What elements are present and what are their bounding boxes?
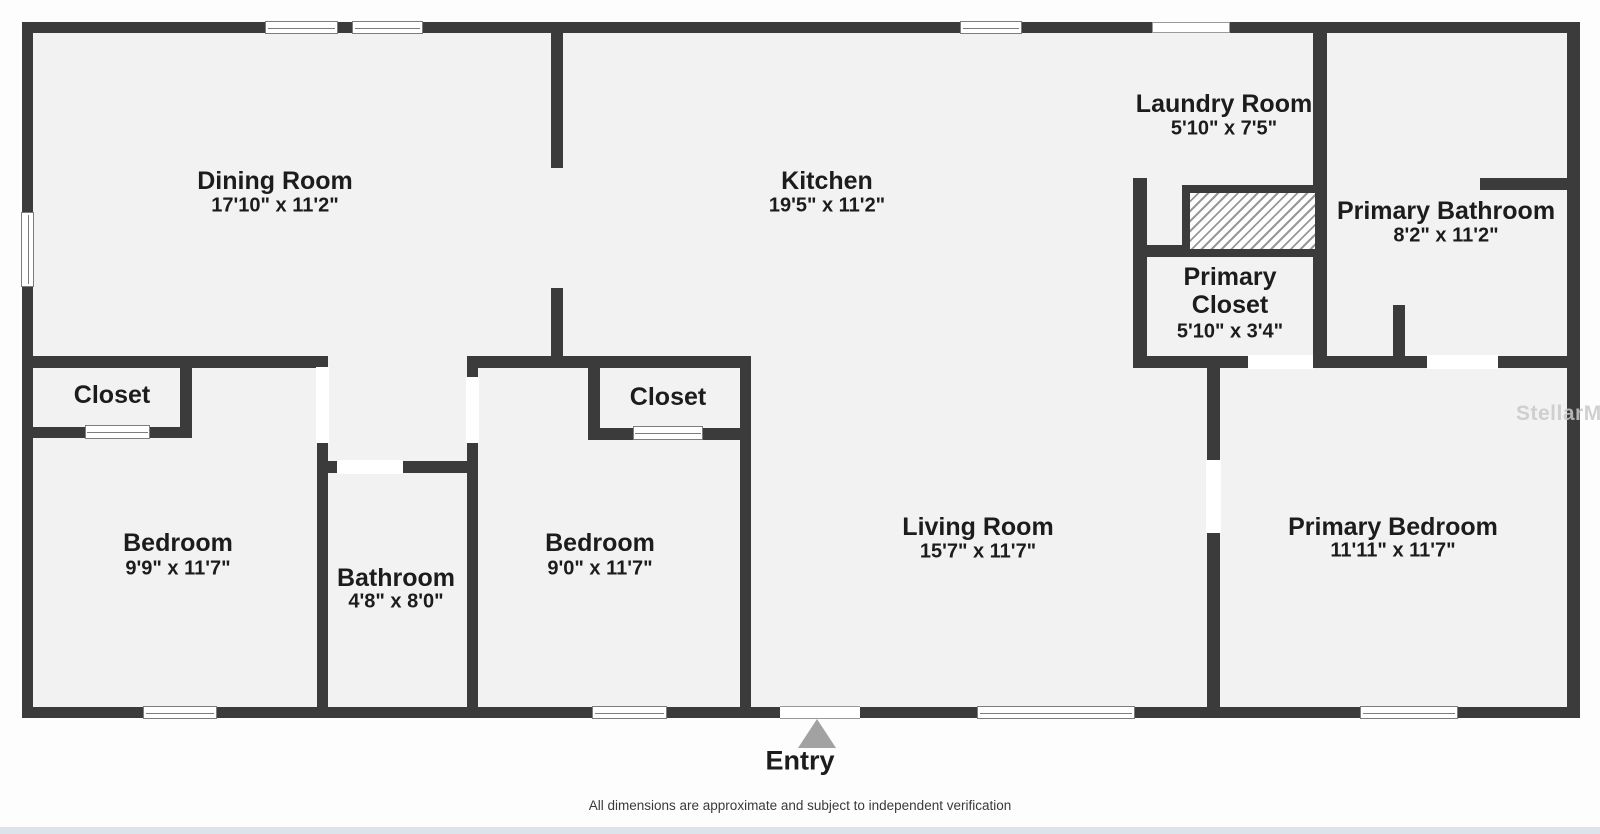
door-opening bbox=[1427, 355, 1498, 369]
entry-label: Entry bbox=[765, 746, 834, 777]
floor-area bbox=[33, 33, 1567, 707]
wall bbox=[1207, 356, 1220, 460]
footer-strip bbox=[0, 827, 1600, 834]
door-opening bbox=[337, 460, 403, 474]
wall bbox=[588, 428, 633, 440]
window bbox=[1360, 706, 1458, 719]
room-label-living: Living Room bbox=[902, 513, 1053, 541]
wall bbox=[740, 356, 751, 707]
stellar-mls-watermark: StellarMLS bbox=[1516, 402, 1600, 426]
room-dims-bedroom-2: 9'0" x 11'7" bbox=[547, 558, 652, 581]
closet-sliding-door bbox=[633, 426, 703, 440]
door-opening bbox=[1206, 460, 1221, 533]
room-label-primary-bathroom: Primary Bathroom bbox=[1337, 197, 1555, 225]
appliance-hatch bbox=[1182, 185, 1323, 257]
window bbox=[352, 21, 423, 34]
floorplan-canvas: Dining Room 17'10" x 11'2" Kitchen 19'5"… bbox=[0, 0, 1600, 834]
room-label-primary-bedroom: Primary Bedroom bbox=[1288, 513, 1498, 541]
door-opening bbox=[316, 367, 329, 443]
room-dims-living: 15'7" x 11'7" bbox=[920, 541, 1036, 564]
room-dims-primary-bedroom: 11'11" x 11'7" bbox=[1330, 540, 1455, 563]
wall bbox=[551, 288, 563, 368]
room-dims-bathroom: 4'8" x 8'0" bbox=[348, 591, 443, 614]
room-label-primary-closet: Primary Closet bbox=[1155, 263, 1305, 319]
window bbox=[960, 21, 1022, 34]
wall bbox=[22, 22, 1580, 33]
room-dims-dining: 17'10" x 11'2" bbox=[211, 195, 338, 218]
window bbox=[592, 706, 667, 719]
room-dims-primary-closet: 5'10" x 3'4" bbox=[1177, 321, 1283, 344]
wall bbox=[467, 356, 751, 368]
wall bbox=[317, 443, 328, 707]
wall-opening bbox=[1152, 22, 1230, 33]
window bbox=[143, 706, 217, 719]
wall bbox=[588, 368, 600, 428]
room-label-closet-2: Closet bbox=[630, 383, 706, 411]
room-dims-kitchen: 19'5" x 11'2" bbox=[769, 195, 885, 218]
wall bbox=[180, 356, 192, 438]
room-label-kitchen: Kitchen bbox=[781, 167, 873, 195]
wall bbox=[1480, 178, 1567, 190]
wall bbox=[1567, 22, 1580, 718]
window bbox=[21, 212, 34, 287]
wall bbox=[22, 22, 33, 718]
room-dims-laundry: 5'10" x 7'5" bbox=[1171, 118, 1277, 141]
window bbox=[265, 21, 338, 34]
door-opening bbox=[466, 377, 479, 443]
room-label-laundry: Laundry Room bbox=[1136, 90, 1312, 118]
wall bbox=[551, 33, 563, 168]
window bbox=[977, 706, 1135, 719]
entry-arrow-icon bbox=[798, 719, 836, 748]
entry-door-opening bbox=[780, 706, 860, 719]
wall bbox=[1133, 178, 1147, 368]
room-label-bedroom-2: Bedroom bbox=[545, 529, 655, 557]
disclaimer-text: All dimensions are approximate and subje… bbox=[0, 798, 1600, 813]
closet-sliding-door bbox=[85, 425, 150, 439]
room-label-dining: Dining Room bbox=[197, 167, 353, 195]
wall bbox=[1133, 356, 1248, 368]
wall bbox=[467, 443, 478, 707]
wall bbox=[1313, 356, 1427, 368]
room-dims-primary-bathroom: 8'2" x 11'2" bbox=[1393, 225, 1498, 248]
room-label-bathroom: Bathroom bbox=[337, 564, 455, 592]
wall bbox=[1498, 356, 1567, 368]
wall bbox=[467, 368, 478, 377]
wall bbox=[33, 427, 85, 438]
wall bbox=[1393, 305, 1405, 368]
room-dims-bedroom-1: 9'9" x 11'7" bbox=[125, 558, 230, 581]
room-label-closet-1: Closet bbox=[74, 381, 150, 409]
wall bbox=[1207, 533, 1220, 707]
door-opening bbox=[1248, 355, 1313, 369]
room-label-bedroom-1: Bedroom bbox=[123, 529, 233, 557]
